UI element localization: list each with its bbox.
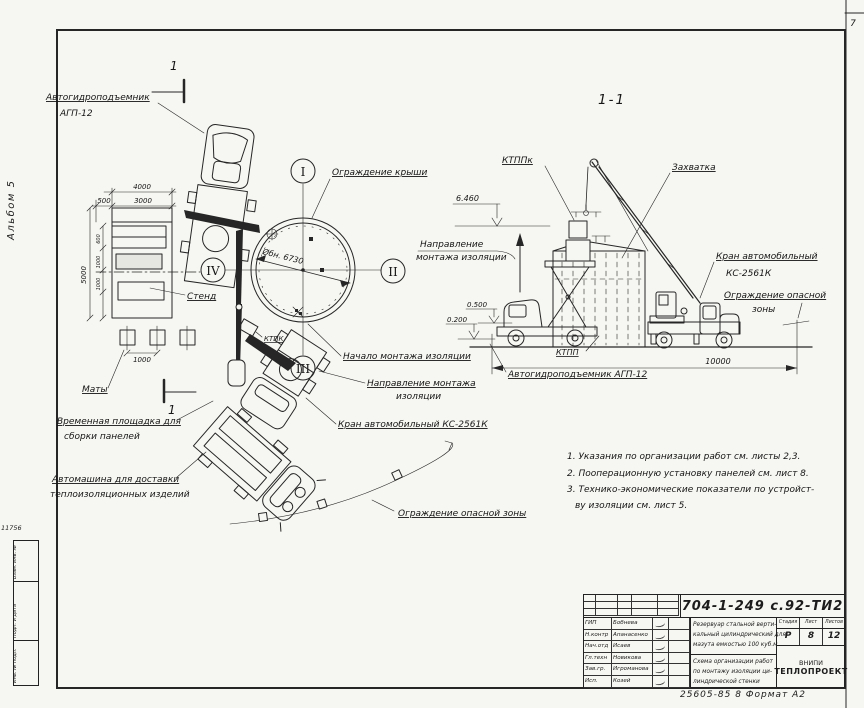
signature-mark (653, 630, 669, 642)
label-ktpk: КТПК (264, 335, 285, 343)
sheets-header: Листов (823, 618, 845, 628)
stamp-cell-label: Инв. № подл. (14, 649, 18, 684)
leader-roof-guard (312, 179, 330, 218)
section-title: 1-1 (598, 92, 626, 108)
dim-seg2: 1000 (96, 256, 102, 269)
signature-mark (653, 618, 669, 630)
axis-mark-2: II (388, 265, 398, 279)
sign-date (669, 664, 690, 676)
signature-mark (653, 641, 669, 653)
label-insulation-dir-line2: изоляции (396, 392, 441, 402)
sign-role: Исп. (584, 676, 612, 688)
sign-role: Зав.гр. (584, 664, 612, 676)
leader-section-crane (700, 262, 714, 298)
label-insulation-start: Начало монтажа изоляции (343, 352, 471, 362)
label-ktpp: КТПП (556, 348, 579, 357)
organization-cell: ВНИПИ ТЕПЛОПРОЕКТ (777, 646, 845, 688)
description-line3: мазута емкостью 100 куб.м (693, 640, 775, 650)
section-direction-arrow (516, 233, 524, 292)
leader-plan-truck-crane (306, 398, 336, 424)
stage-values: Р 8 12 (777, 629, 845, 646)
label-delivery-line1: Автомашина для доставки (51, 475, 179, 485)
stage-header: Стадия (777, 618, 800, 628)
signature-table: ГИПБобнева Н.контрАпанасенко Нач.отдИсае… (584, 618, 691, 688)
label-mats: Маты (82, 385, 108, 395)
description-line1: Резервуар стальной верти- (693, 620, 775, 630)
dim-3000: 3000 (134, 197, 152, 205)
elevation-0500: 0.500 (467, 301, 488, 309)
leader-ktpk (256, 332, 262, 337)
note-3-cont: ву изоляции см. лист 5. (575, 501, 687, 511)
stamp-cell: Инв. № подл. (14, 641, 38, 685)
label-section-danger-line1: Ограждение опасной (724, 291, 826, 301)
label-plan-truck-crane: Кран автомобильный КС-2561К (338, 420, 488, 430)
label-roof-guard: Ограждение крыши (332, 168, 428, 178)
label-ktppk: КТППк (502, 156, 533, 166)
stage-headers: Стадия Лист Листов (777, 618, 845, 629)
doc-number: 704-1-249 с.92-ТИ2 (681, 595, 844, 617)
subject-line3: линдрической стенки (693, 677, 775, 687)
section-crane-boom (571, 159, 700, 303)
sheet-header: Лист (800, 618, 823, 628)
subject-line2: по монтажу изоляции ци- (693, 667, 775, 677)
label-section-dir-line2: монтажа изоляции (416, 253, 507, 263)
signature-mark (653, 676, 669, 688)
description-column: Резервуар стальной верти- кальный цилинд… (691, 618, 777, 688)
note-1: 1. Указания по организации работ см. лис… (567, 452, 800, 462)
section-danger-fence (783, 303, 809, 347)
sign-name: Новикова (612, 653, 653, 665)
axis-mark-4: IV (206, 264, 220, 278)
elevation-0200-mark (446, 324, 495, 339)
signature-mark (653, 664, 669, 676)
dim-5000: 5000 (80, 266, 88, 284)
section-agp12-truck (497, 261, 597, 346)
notes-block: 1. Указания по организации работ см. лис… (567, 452, 814, 511)
format-note: 25605-85 8 Формат А2 (680, 690, 806, 700)
plan-agp12-truck (176, 122, 265, 289)
sign-name: Апанасенко (612, 630, 653, 642)
stamp-cell-label: Взам. инв. № (14, 545, 18, 579)
sign-role: ГИП (584, 618, 612, 630)
sheet-value: 8 (800, 629, 823, 645)
dim-mats-1000: 1000 (133, 356, 151, 364)
plan-stand (96, 208, 200, 318)
sign-date (669, 630, 690, 642)
sheet-subject: Схема организации работ по монтажу изоля… (691, 655, 776, 688)
leader-plan-danger-zone (372, 500, 394, 511)
leader-mats (108, 350, 124, 388)
note-3: 3. Технико-экономические показатели по у… (567, 485, 814, 495)
stamp-cell: Взам. инв. № (14, 541, 38, 582)
drawing-sheet: 7 1 1 Автогидроподъемник АГП-12 (0, 0, 864, 708)
sign-date (669, 653, 690, 665)
label-tank-diameter: Øбн. 6730 (261, 246, 305, 266)
section-cut-mark-top (152, 80, 184, 102)
leader-agp (158, 103, 204, 133)
leader-ktpp (586, 336, 599, 351)
inventory-number: 11756 (1, 524, 22, 532)
leader-ktppk (545, 166, 574, 220)
corner-sheet-number: 7 (850, 19, 856, 29)
subject-line1: Схема организации работ (693, 657, 775, 667)
section-panel-container (566, 221, 590, 261)
axis-mark-1: I (301, 165, 306, 179)
stage-column: Стадия Лист Листов Р 8 12 ВНИПИ ТЕПЛОПРО… (777, 618, 845, 688)
stamp-cell: Подп. и дата (14, 582, 38, 641)
revision-grid (584, 595, 681, 617)
sign-name: Бобнева (612, 618, 653, 630)
label-zahvatka: Захватка (672, 163, 716, 173)
title-block: 704-1-249 с.92-ТИ2 ГИПБобнева Н.контрАпа… (583, 594, 845, 688)
sign-role: Н.контр (584, 630, 612, 642)
plan-mats (120, 326, 195, 356)
dim-seg3: 1000 (96, 278, 102, 291)
label-delivery-line2: теплоизоляционных изделий (50, 490, 190, 500)
project-description: Резервуар стальной верти- кальный цилинд… (691, 618, 776, 655)
leader-delivery (176, 452, 206, 478)
label-agp-line2: АГП-12 (59, 109, 93, 119)
signature-mark (653, 653, 669, 665)
label-plan-danger-zone: Ограждение опасной зоны (398, 509, 526, 519)
label-section-crane-line2: КС-2561К (726, 269, 772, 279)
label-section-dir-line1: Направление (420, 240, 484, 250)
sign-name: Исаев (612, 641, 653, 653)
album-label: Альбом 5 (6, 180, 17, 241)
elevation-0200: 0.200 (447, 316, 468, 324)
elevation-6460-mark (453, 204, 550, 226)
note-2: 2. Пооперационную установку панелей см. … (567, 469, 809, 479)
sheets-value: 12 (823, 629, 845, 645)
sign-role: Нач.отд (584, 641, 612, 653)
title-block-top-row: 704-1-249 с.92-ТИ2 (584, 595, 844, 618)
sign-date (669, 618, 690, 630)
label-insulation-dir-line1: Направление монтажа (367, 379, 476, 389)
sign-date (669, 676, 690, 688)
dim-seg1: 600 (96, 234, 102, 244)
label-agp-line1: Автогидроподъемник (45, 93, 150, 103)
elevation-6460: 6.460 (456, 194, 479, 203)
label-section-agp: Автогидроподъемник АГП-12 (507, 370, 647, 380)
plan-ktpk-container (239, 319, 258, 337)
sign-date (669, 641, 690, 653)
leader-temp-platform (177, 401, 213, 420)
dim-10000: 10000 (705, 357, 730, 366)
dim-4000: 4000 (133, 183, 151, 191)
section-cut-label-bottom: 1 (168, 403, 176, 417)
frame-stamp-table: Взам. инв. № Подп. и дата Инв. № подл. (13, 540, 39, 686)
stage-value: Р (777, 629, 800, 645)
label-stand: Стенд (187, 292, 216, 302)
section-cut-mark-bottom (164, 380, 196, 402)
sign-role: Гл.техн (584, 653, 612, 665)
label-section-danger-line2: зоны (752, 305, 775, 315)
label-section-crane-line1: Кран автомобильный (716, 252, 818, 262)
leader-stand (150, 288, 185, 295)
org-line2: ТЕПЛОПРОЕКТ (774, 667, 847, 676)
leader-zahvatka (622, 173, 670, 258)
label-temp-platform-line1: Временная площадка для (57, 417, 181, 427)
leader-insulation-dir (319, 371, 365, 383)
elevation-0500-mark (466, 309, 512, 323)
label-temp-platform-line2: сборки панелей (64, 432, 140, 442)
title-block-main: ГИПБобнева Н.контрАпанасенко Нач.отдИсае… (584, 618, 844, 688)
sign-name: Игроманова (612, 664, 653, 676)
dim-500: 500 (97, 197, 111, 205)
description-line2: кальный цилиндрический для (693, 630, 775, 640)
org-line1: ВНИПИ (799, 659, 823, 667)
sign-name: Козей (612, 676, 653, 688)
stamp-cell-label: Подп. и дата (14, 604, 18, 638)
section-cut-label-top: 1 (170, 59, 178, 73)
